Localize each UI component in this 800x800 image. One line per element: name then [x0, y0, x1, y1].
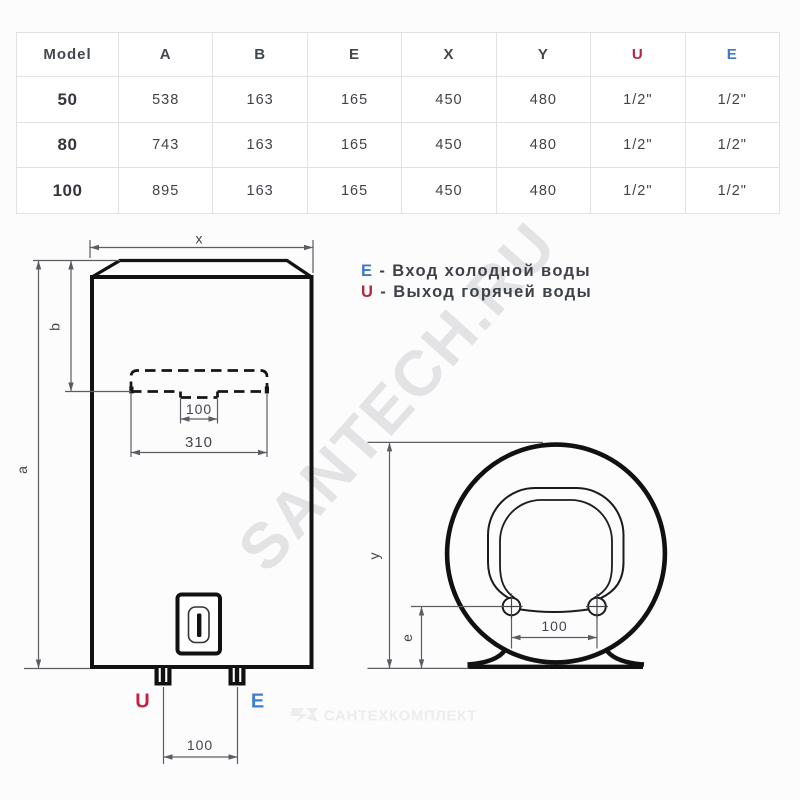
- svg-text:100: 100: [541, 618, 567, 634]
- svg-text:y: y: [366, 553, 382, 560]
- svg-text:100: 100: [187, 737, 213, 753]
- svg-text:a: a: [14, 466, 30, 474]
- svg-text:x: x: [196, 231, 203, 247]
- svg-text:310: 310: [185, 434, 213, 451]
- svg-text:САНТЕХКОМПЛЕКТ: САНТЕХКОМПЛЕКТ: [324, 708, 477, 725]
- svg-text:E - Вход холодной воды: E - Вход холодной воды: [361, 262, 591, 280]
- svg-text:100: 100: [186, 401, 212, 417]
- svg-text:e: e: [399, 634, 415, 642]
- svg-text:E: E: [251, 691, 264, 713]
- svg-text:U: U: [135, 691, 149, 713]
- svg-text:b: b: [47, 323, 63, 331]
- svg-text:U - Выход горячей воды: U - Выход горячей воды: [361, 283, 592, 301]
